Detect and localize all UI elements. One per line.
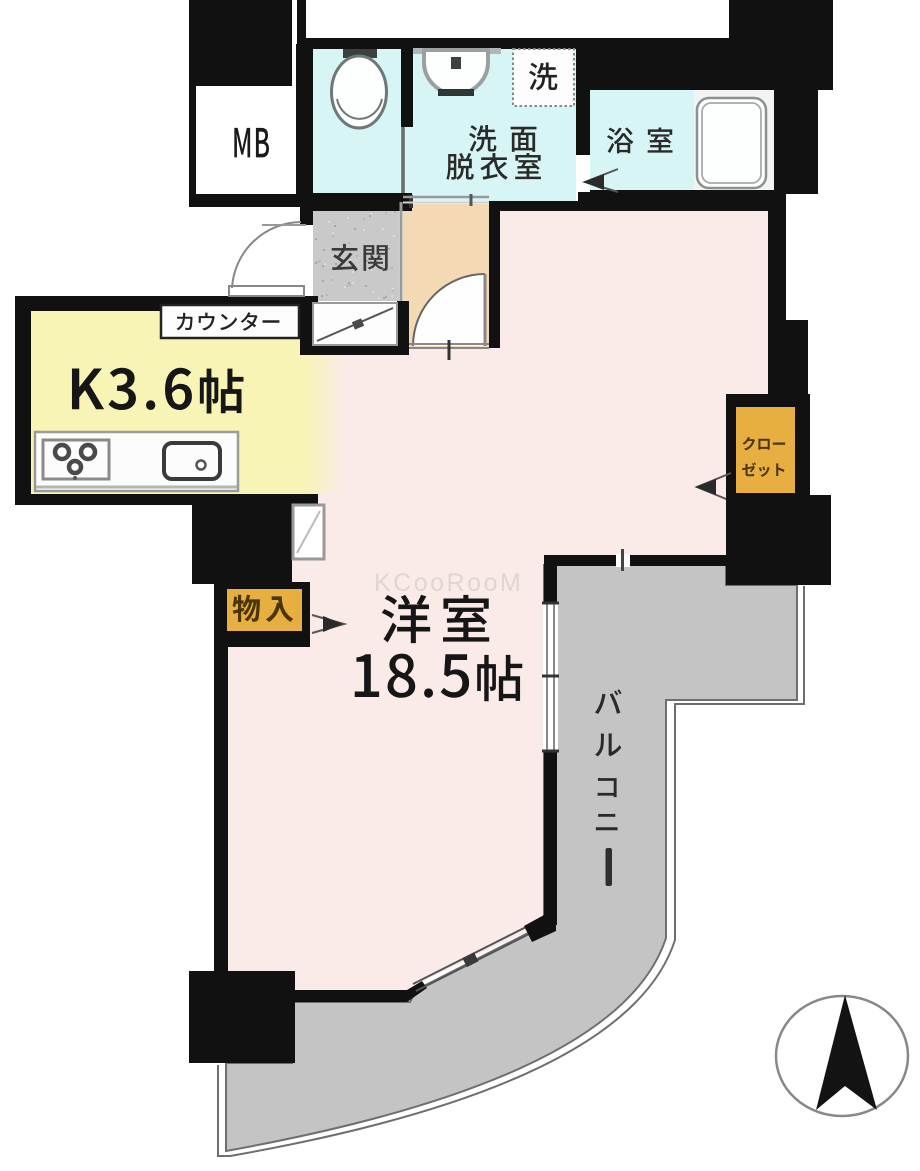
svg-text:KCooRooM: KCooRooM — [374, 569, 523, 597]
